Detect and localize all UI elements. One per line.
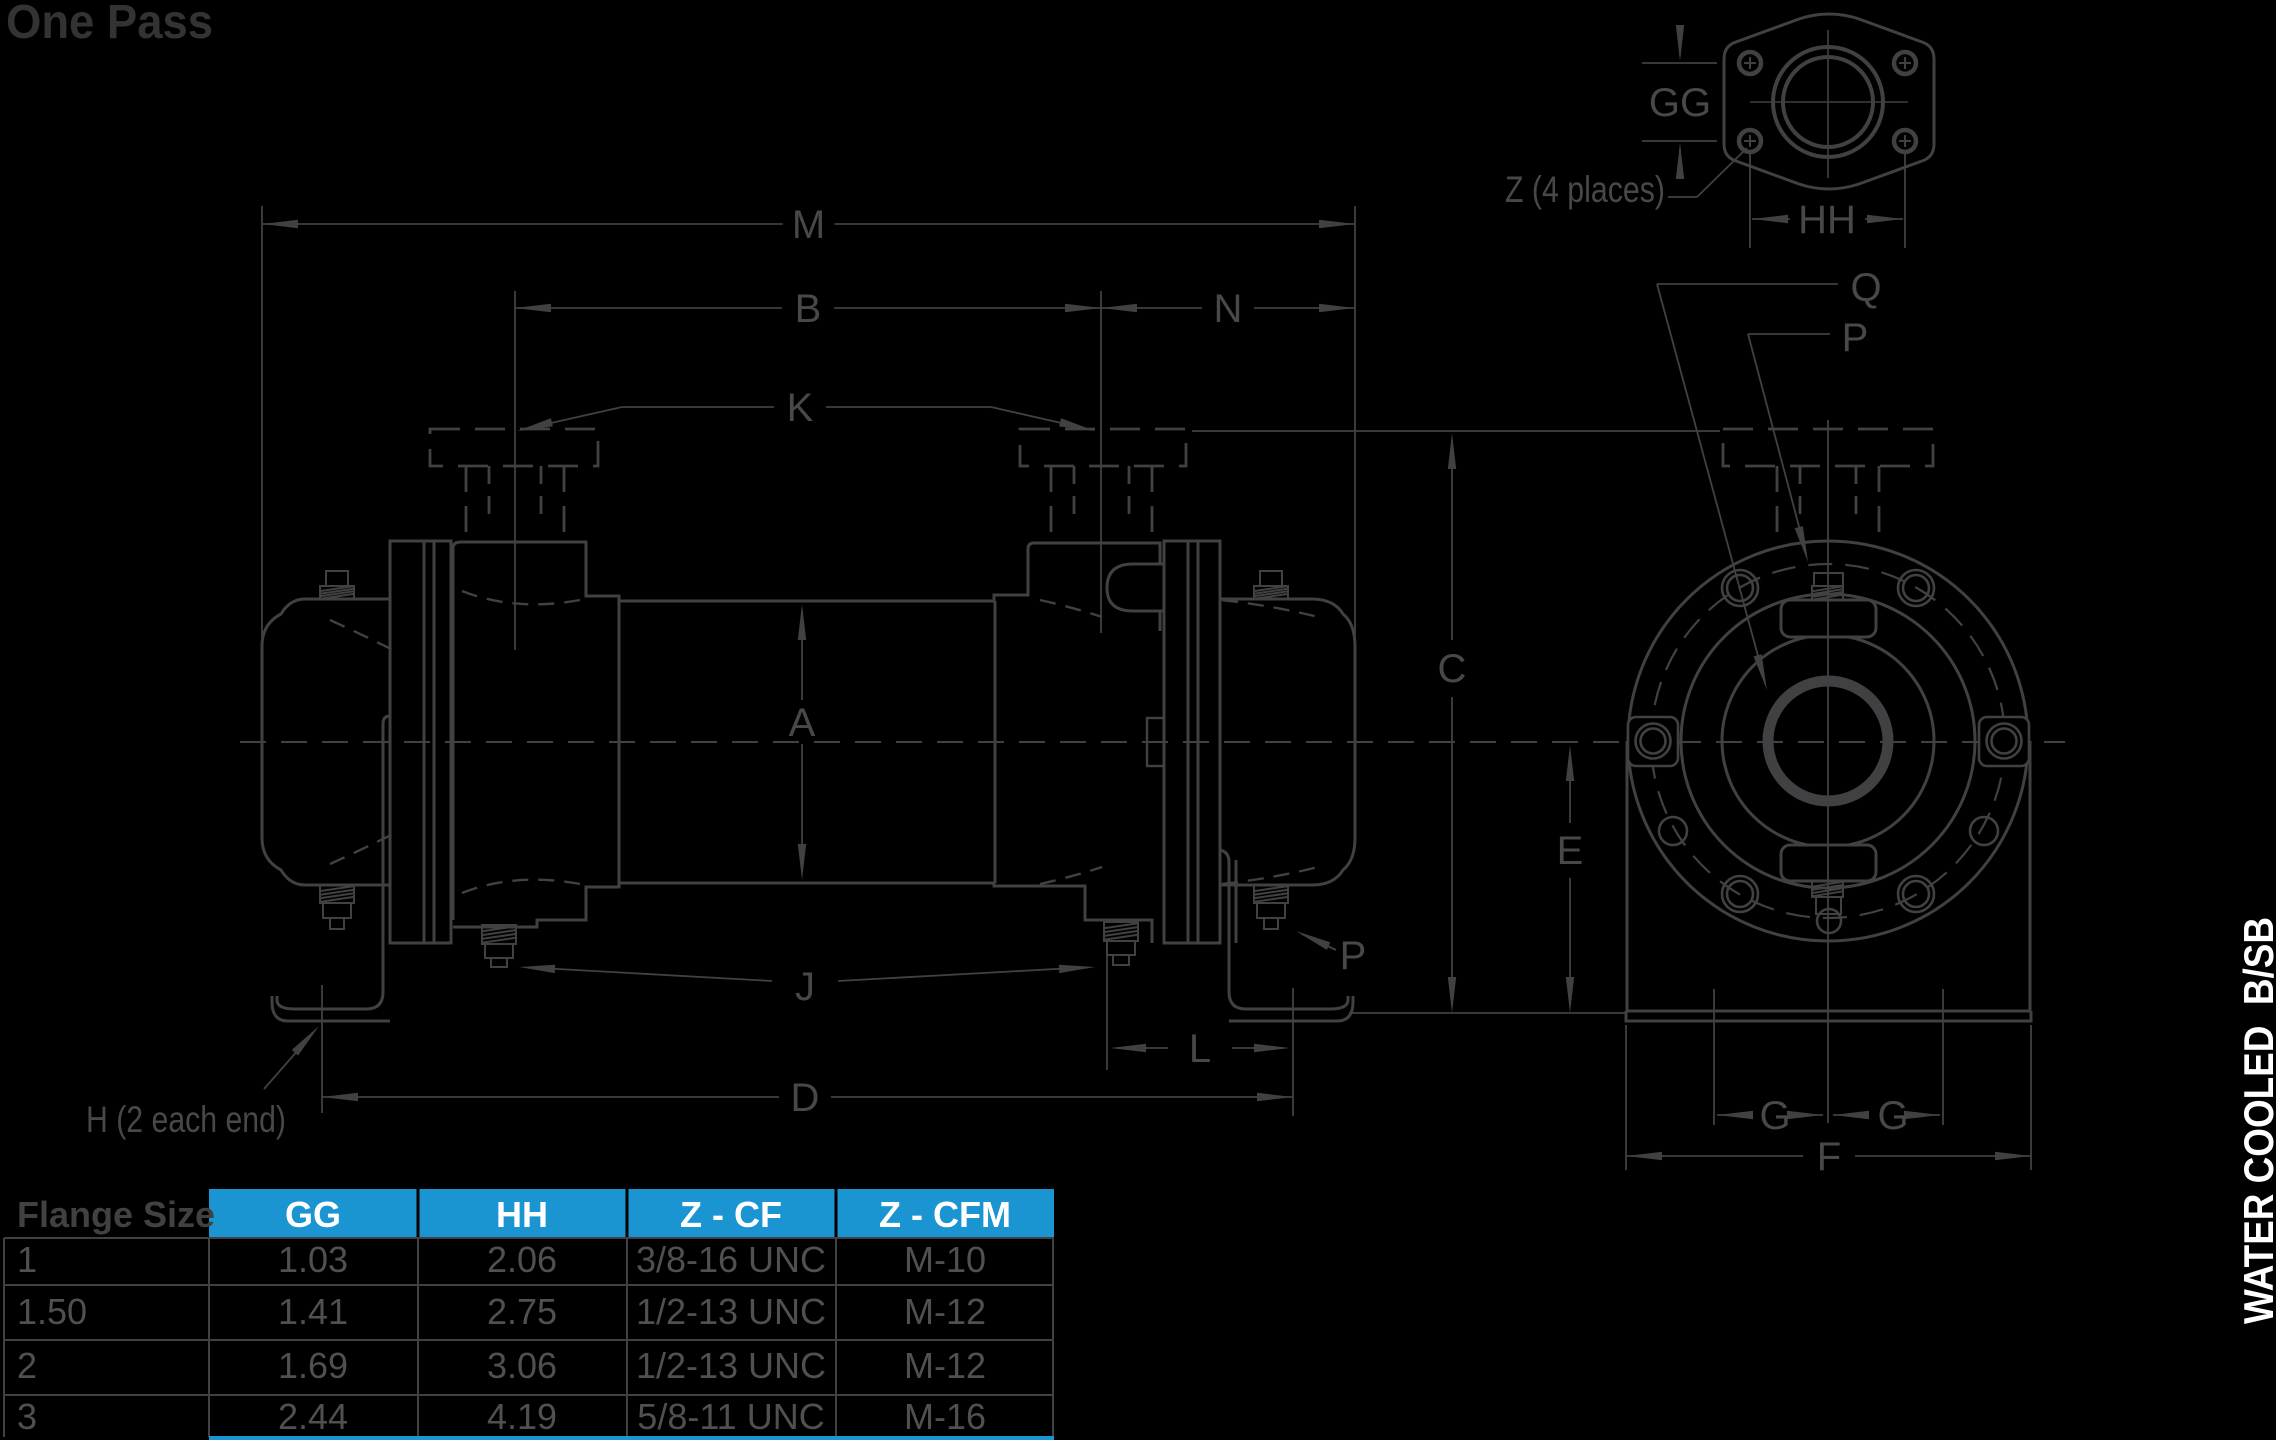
svg-text:M-10: M-10 bbox=[904, 1239, 986, 1280]
svg-text:1/2-13 UNC: 1/2-13 UNC bbox=[636, 1291, 826, 1332]
svg-text:GG: GG bbox=[285, 1194, 341, 1235]
svg-text:1.41: 1.41 bbox=[278, 1291, 348, 1332]
svg-text:M-12: M-12 bbox=[904, 1345, 986, 1386]
svg-text:E: E bbox=[1557, 829, 1584, 873]
svg-text:2.06: 2.06 bbox=[487, 1239, 557, 1280]
svg-text:N: N bbox=[1214, 287, 1243, 331]
svg-text:2.44: 2.44 bbox=[278, 1396, 348, 1437]
svg-text:1: 1 bbox=[17, 1239, 37, 1280]
svg-text:M-12: M-12 bbox=[904, 1291, 986, 1332]
svg-text:Z - CFM: Z - CFM bbox=[879, 1194, 1011, 1235]
svg-text:K: K bbox=[787, 386, 814, 430]
svg-text:G: G bbox=[1877, 1094, 1908, 1138]
svg-text:1.69: 1.69 bbox=[278, 1345, 348, 1386]
svg-text:M: M bbox=[792, 203, 825, 247]
svg-text:1.03: 1.03 bbox=[278, 1239, 348, 1280]
svg-text:H (2 each end): H (2 each end) bbox=[86, 1099, 286, 1140]
svg-text:HH: HH bbox=[496, 1194, 548, 1235]
svg-text:1.50: 1.50 bbox=[17, 1291, 87, 1332]
svg-text:2.75: 2.75 bbox=[487, 1291, 557, 1332]
svg-text:Flange Size: Flange Size bbox=[17, 1194, 215, 1235]
svg-text:WATER COOLED B/SB: WATER COOLED B/SB bbox=[2235, 917, 2276, 1324]
svg-text:M-16: M-16 bbox=[904, 1396, 986, 1437]
svg-text:One Pass: One Pass bbox=[6, 0, 213, 49]
svg-text:P: P bbox=[1340, 934, 1367, 978]
svg-text:A: A bbox=[789, 701, 816, 745]
svg-text:Z - CF: Z - CF bbox=[680, 1194, 782, 1235]
svg-text:F: F bbox=[1817, 1135, 1841, 1179]
svg-text:1/2-13 UNC: 1/2-13 UNC bbox=[636, 1345, 826, 1386]
svg-text:3.06: 3.06 bbox=[487, 1345, 557, 1386]
svg-text:HH: HH bbox=[1798, 198, 1856, 242]
svg-text:Z (4 places): Z (4 places) bbox=[1505, 169, 1665, 210]
svg-text:P: P bbox=[1842, 316, 1869, 360]
svg-text:G: G bbox=[1759, 1094, 1790, 1138]
svg-text:J: J bbox=[795, 965, 815, 1009]
svg-text:GG: GG bbox=[1649, 81, 1711, 125]
svg-text:2: 2 bbox=[17, 1345, 37, 1386]
svg-text:3: 3 bbox=[17, 1396, 37, 1437]
svg-text:5/8-11 UNC: 5/8-11 UNC bbox=[637, 1396, 824, 1437]
svg-text:B: B bbox=[795, 287, 822, 331]
svg-text:3/8-16 UNC: 3/8-16 UNC bbox=[636, 1239, 826, 1280]
svg-text:D: D bbox=[791, 1076, 820, 1120]
svg-text:L: L bbox=[1189, 1027, 1211, 1071]
svg-text:4.19: 4.19 bbox=[487, 1396, 557, 1437]
svg-text:C: C bbox=[1438, 647, 1467, 691]
svg-text:Q: Q bbox=[1850, 266, 1881, 310]
